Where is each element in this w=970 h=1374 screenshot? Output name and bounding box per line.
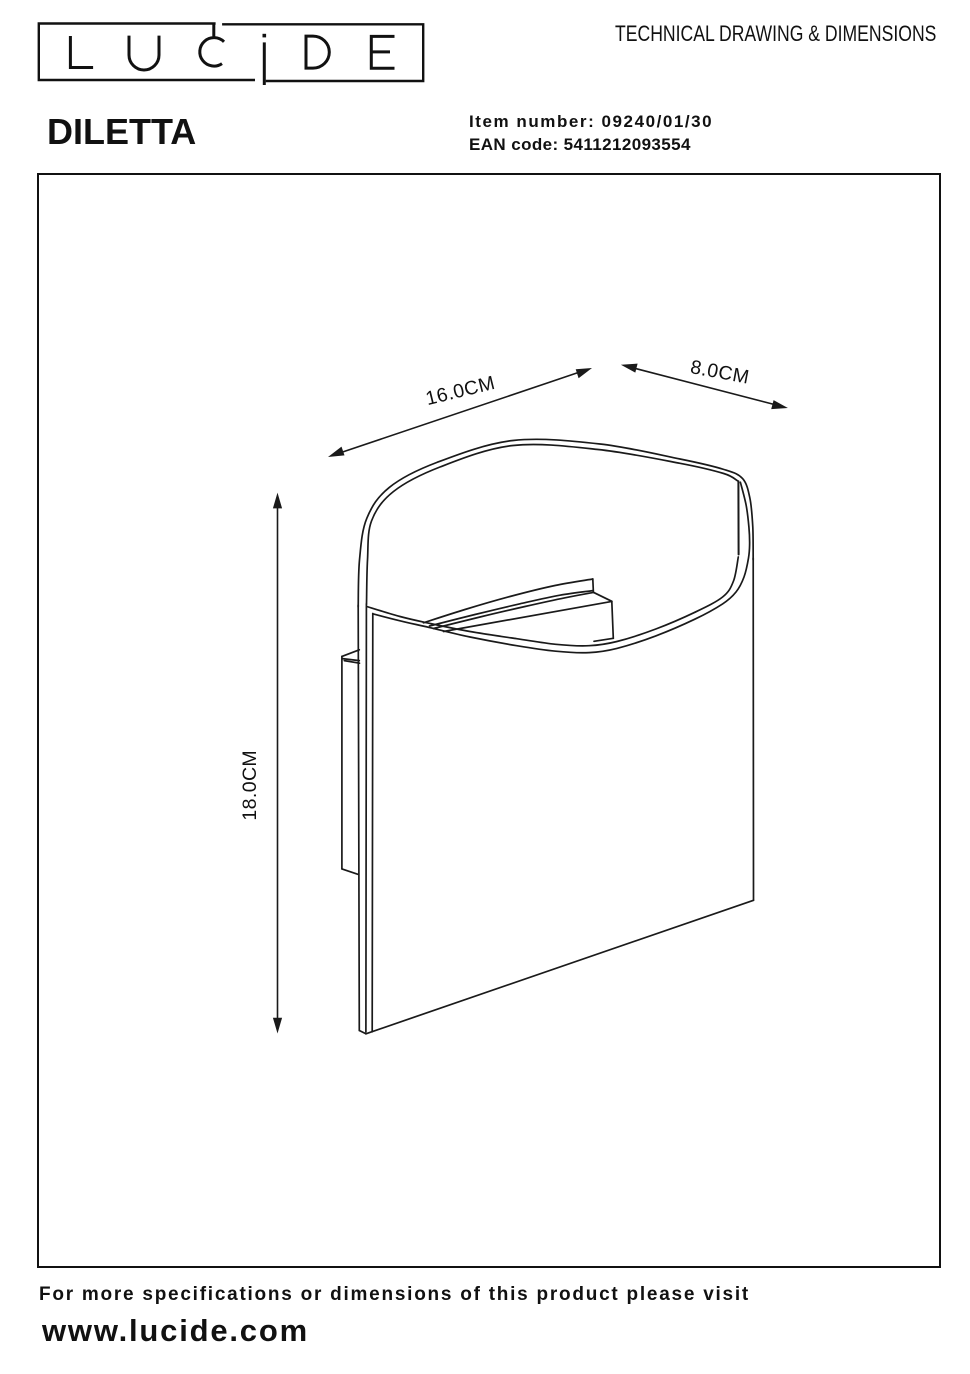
- svg-text:18.0CM: 18.0CM: [239, 750, 261, 821]
- svg-text:8.0CM: 8.0CM: [689, 356, 751, 388]
